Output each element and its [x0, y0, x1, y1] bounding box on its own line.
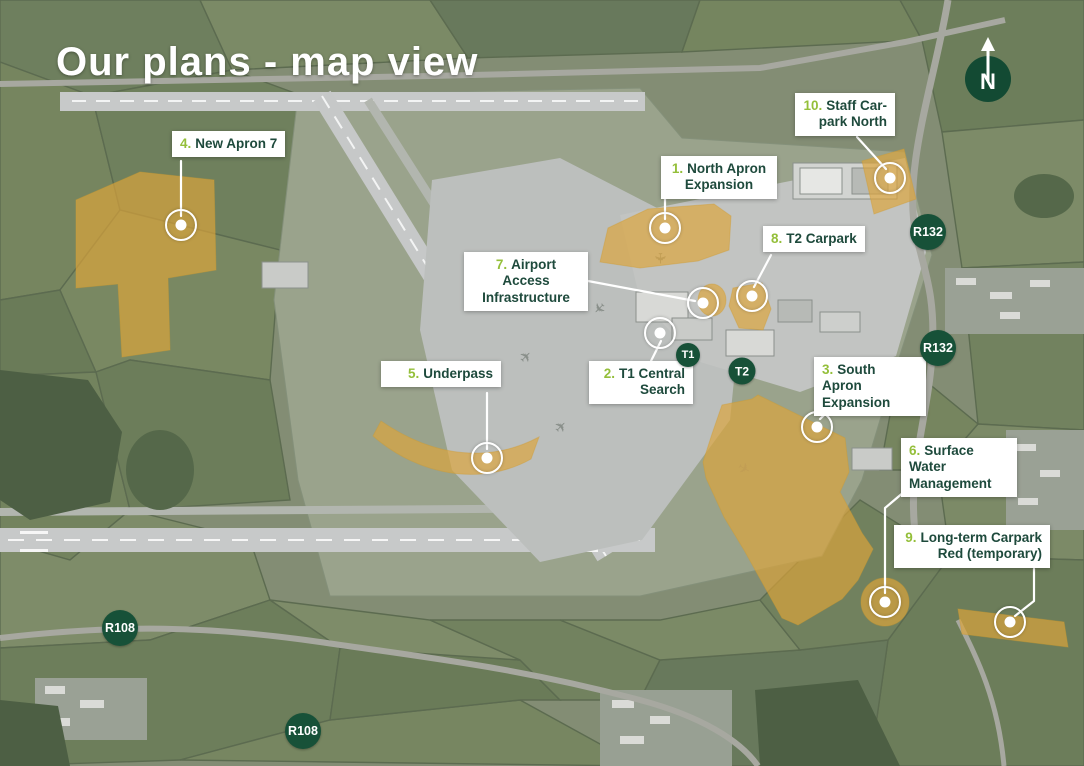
- label-surface-water-management: 6.Surface Water Management: [901, 438, 1017, 497]
- road-badge-label: R132: [923, 341, 953, 355]
- road-badge-label: R108: [105, 621, 135, 635]
- marker-t1-central-search: [644, 317, 676, 349]
- label-text: New Apron 7: [195, 136, 277, 151]
- road-badge-label: R108: [288, 724, 318, 738]
- label-number: 7.: [496, 257, 507, 272]
- label-north-apron-expansion: 1.North Apron Expansion: [661, 156, 777, 199]
- marker-airport-access: [687, 287, 719, 319]
- marker-staff-carpark-north: [874, 162, 906, 194]
- label-number: 1.: [672, 161, 683, 176]
- road-badge-r132-south: R132: [920, 330, 956, 366]
- marker-surface-water: [869, 586, 901, 618]
- label-text: T2 Carpark: [786, 231, 857, 246]
- marker-t2-carpark: [736, 280, 768, 312]
- page-title: Our plans - map view: [56, 40, 478, 85]
- label-text: T1 Central Search: [619, 366, 685, 397]
- label-south-apron-expansion: 3.South Apron Expansion: [814, 357, 926, 416]
- label-airport-access-infrastructure: 7.Airport Access Infrastructure: [464, 252, 588, 311]
- label-number: 4.: [180, 136, 191, 151]
- north-runway: [60, 92, 645, 111]
- label-text: North Apron Expansion: [685, 161, 766, 192]
- label-text: Staff Car-park North: [819, 98, 887, 129]
- label-underpass: 5.Underpass: [381, 361, 501, 387]
- label-new-apron-7: 4.New Apron 7: [172, 131, 285, 157]
- label-number: 2.: [604, 366, 615, 381]
- terminal-badge-t1: T1: [676, 343, 700, 367]
- label-number: 5.: [408, 366, 419, 381]
- label-number: 9.: [905, 530, 916, 545]
- label-number: 8.: [771, 231, 782, 246]
- label-text: Underpass: [423, 366, 493, 381]
- label-t1-central-search: 2.T1 Central Search: [589, 361, 693, 404]
- label-number: 3.: [822, 362, 833, 377]
- marker-new-apron-7: [165, 209, 197, 241]
- label-number: 6.: [909, 443, 920, 458]
- road-badge-r108-west: R108: [102, 610, 138, 646]
- label-t2-carpark: 8.T2 Carpark: [763, 226, 865, 252]
- road-badge-r108-east: R108: [285, 713, 321, 749]
- label-longterm-carpark-red: 9.Long-term Carpark Red (temporary): [894, 525, 1050, 568]
- marker-longterm-carpark-red: [994, 606, 1026, 638]
- north-arrow-icon: [978, 37, 998, 83]
- terminal-badge-t2: T2: [729, 358, 756, 385]
- road-badge-r132-north: R132: [910, 214, 946, 250]
- terminal-badge-label: T2: [735, 364, 749, 378]
- road-badge-label: R132: [913, 225, 943, 239]
- label-text: Long-term Carpark Red (temporary): [920, 530, 1042, 561]
- label-number: 10.: [803, 98, 822, 113]
- terminal-badge-label: T1: [682, 349, 695, 361]
- label-staff-carpark-north: 10.Staff Car-park North: [795, 93, 895, 136]
- plans-map-view: ✈ ✈ ✈ ✈ ✈ ✈: [0, 0, 1084, 766]
- marker-underpass: [471, 442, 503, 474]
- marker-north-apron-expansion: [649, 212, 681, 244]
- label-text: Surface Water Management: [909, 443, 992, 491]
